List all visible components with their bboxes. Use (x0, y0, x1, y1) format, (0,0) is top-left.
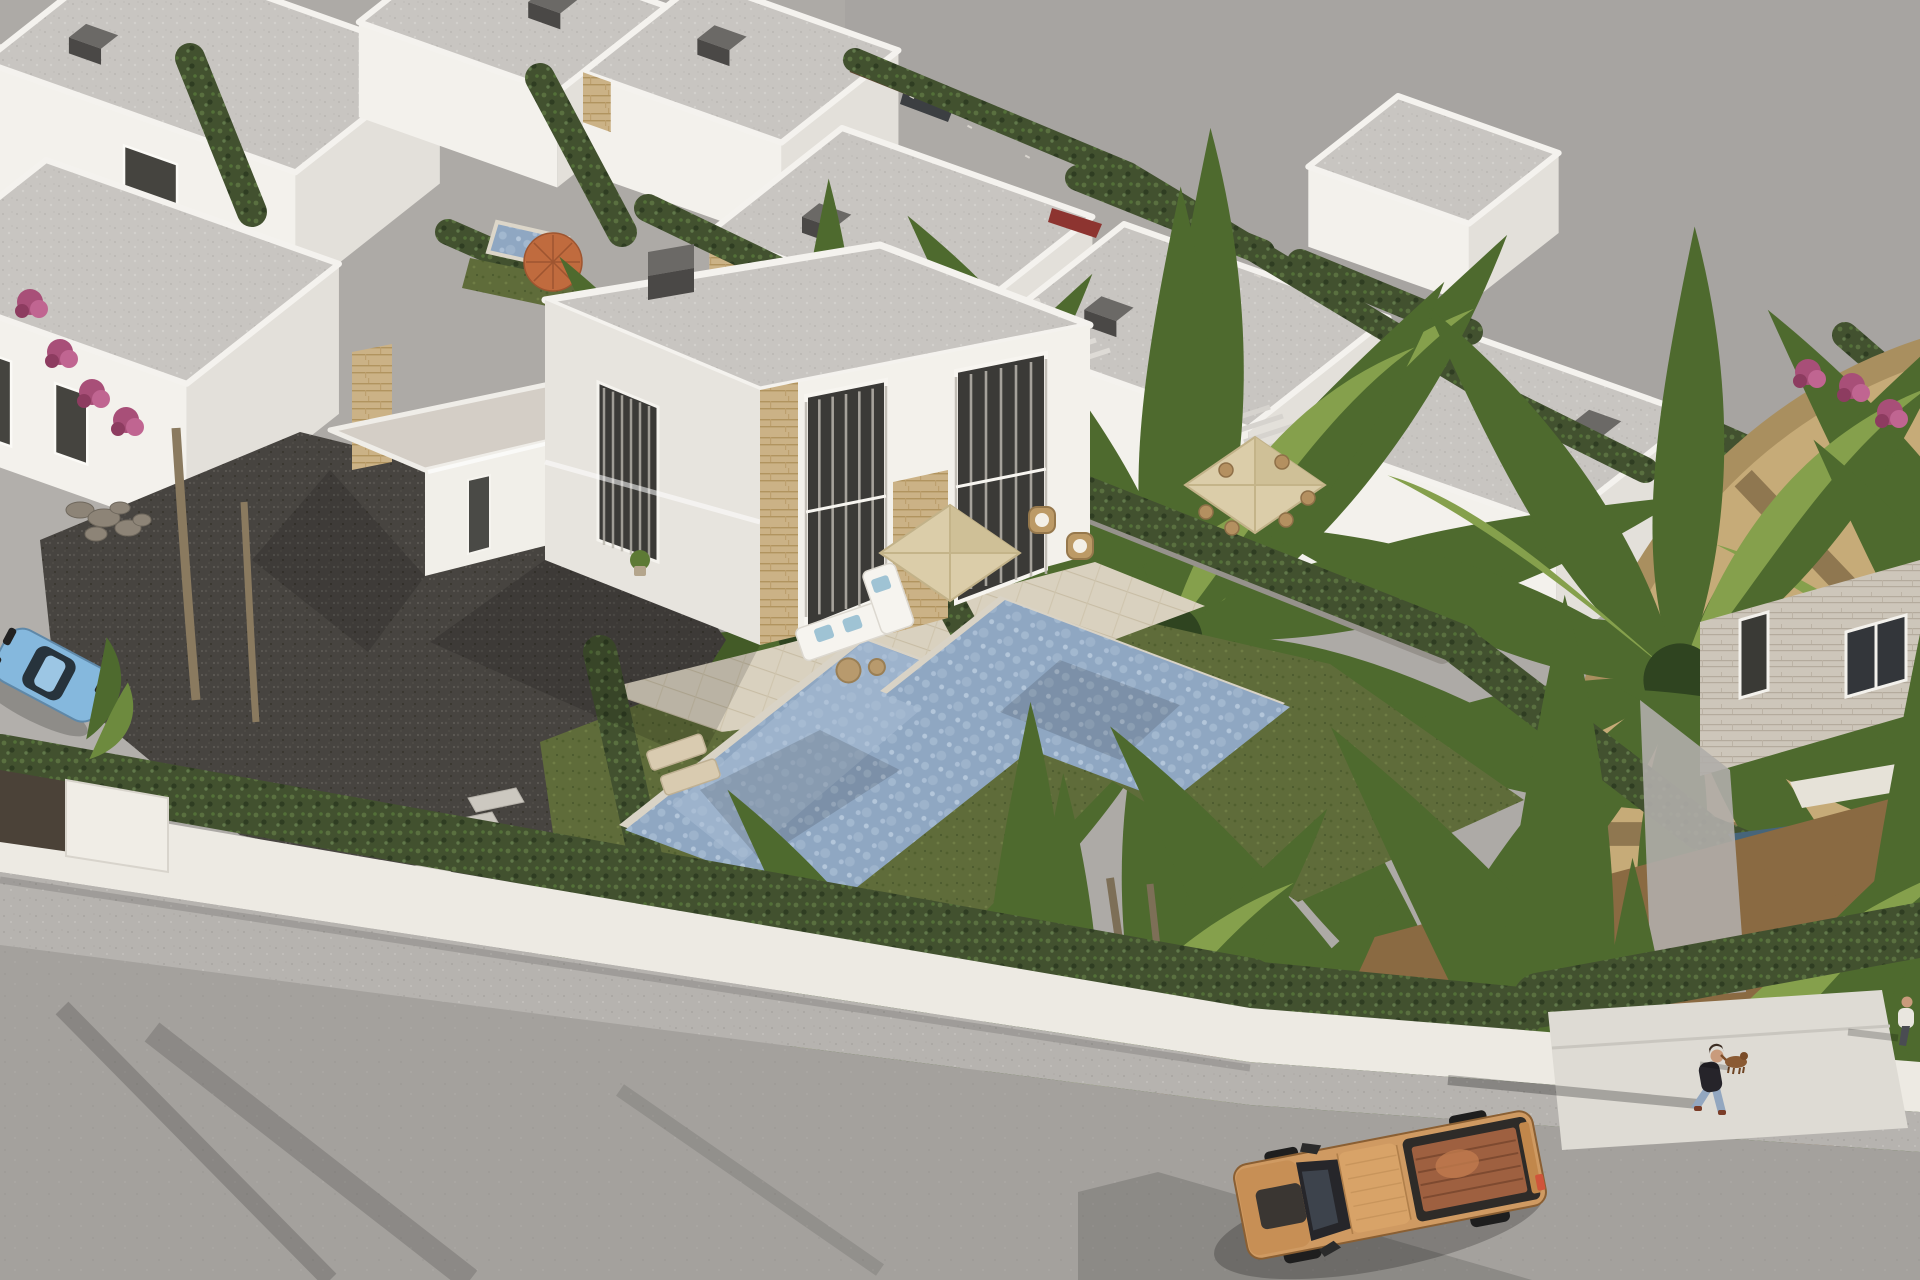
entry-fence (0, 770, 70, 852)
render-scene: const data = JSON.parse(document.getElem… (0, 0, 1920, 1280)
stone-pier (760, 382, 798, 645)
front-door (1740, 612, 1768, 698)
stone-accent (583, 72, 611, 132)
villa-development-render: const data = JSON.parse(document.getElem… (0, 0, 1920, 1280)
